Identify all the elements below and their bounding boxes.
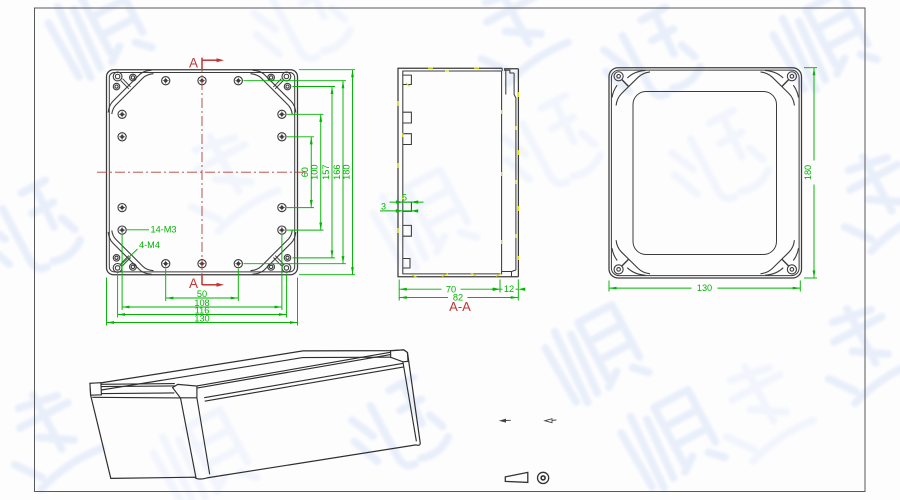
svg-text:A-A: A-A (449, 299, 471, 314)
svg-text:157: 157 (321, 165, 331, 180)
svg-text:60: 60 (300, 167, 310, 177)
svg-text:130: 130 (194, 314, 209, 324)
svg-text:130: 130 (697, 283, 712, 293)
svg-text:180: 180 (803, 165, 813, 180)
svg-text:180: 180 (341, 165, 351, 180)
svg-text:4-M4: 4-M4 (139, 240, 160, 250)
svg-text:14-M3: 14-M3 (151, 225, 177, 235)
svg-text:12: 12 (504, 284, 514, 294)
svg-text:166: 166 (332, 165, 342, 180)
svg-text:5: 5 (402, 193, 407, 203)
svg-text:A: A (189, 55, 198, 70)
svg-text:3: 3 (381, 202, 386, 212)
svg-text:100: 100 (310, 165, 320, 180)
